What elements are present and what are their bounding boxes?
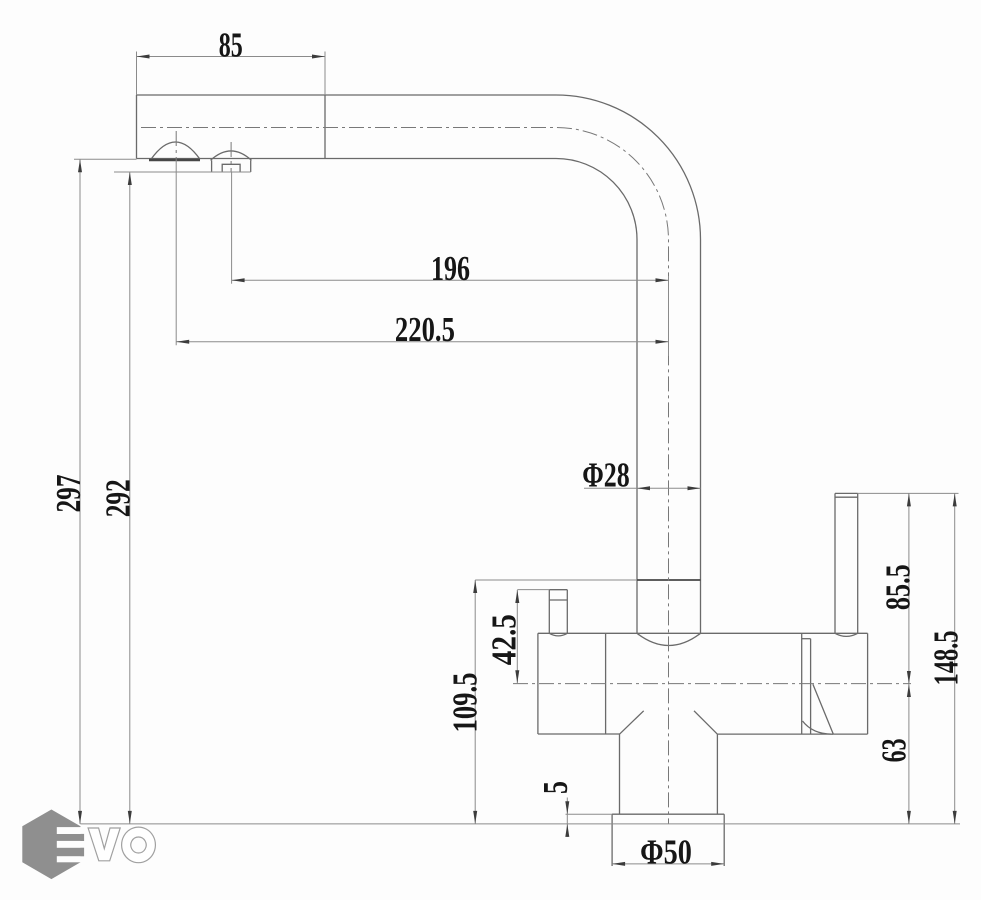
svg-text:109.5: 109.5 — [445, 673, 484, 733]
svg-text:Φ50: Φ50 — [640, 833, 692, 872]
svg-text:85: 85 — [219, 26, 243, 64]
svg-text:Φ28: Φ28 — [582, 456, 629, 495]
svg-text:148.5: 148.5 — [926, 631, 965, 686]
svg-text:292: 292 — [98, 479, 137, 517]
svg-text:196: 196 — [431, 249, 470, 288]
svg-text:220.5: 220.5 — [395, 310, 455, 349]
svg-text:42.5: 42.5 — [484, 614, 523, 665]
svg-text:297: 297 — [49, 474, 88, 512]
svg-text:63: 63 — [875, 738, 913, 762]
svg-text:85.5: 85.5 — [878, 564, 918, 610]
svg-text:5: 5 — [536, 781, 575, 794]
